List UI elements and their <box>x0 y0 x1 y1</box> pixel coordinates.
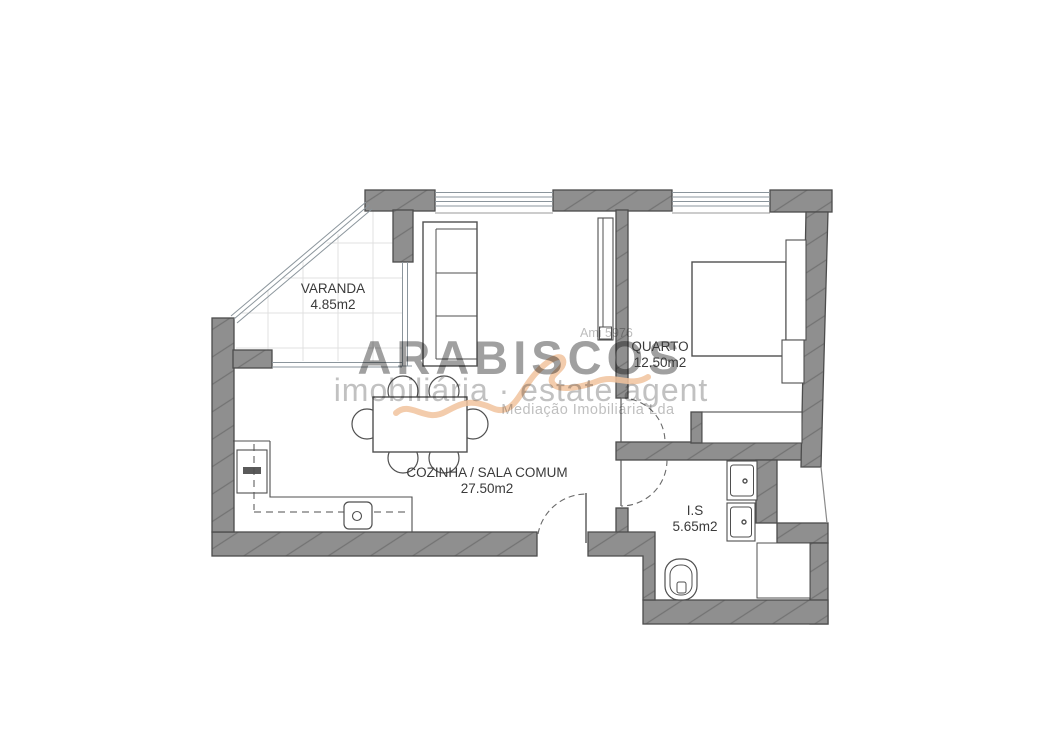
room-label-quarto: QUARTO 12.50m2 <box>631 339 688 371</box>
wall-pier-left <box>233 350 272 368</box>
wall-bathroom-right <box>756 460 777 523</box>
room-label-is: I.S 5.65m2 <box>672 503 717 535</box>
wall-bedroom-bathroom <box>616 442 813 460</box>
room-name: VARANDA <box>301 281 365 297</box>
window-living <box>435 193 553 214</box>
wall-corner-top-right <box>770 190 832 212</box>
sink-drain <box>353 512 362 521</box>
watermark-company: Mediação Imobiliária Lda <box>501 402 674 418</box>
washbasin <box>727 461 757 500</box>
wall-bottom <box>212 532 537 556</box>
wall-niche-bottom <box>777 523 828 543</box>
wall-pier-wardrobe <box>691 412 702 443</box>
room-label-varanda: VARANDA 4.85m2 <box>301 281 365 313</box>
washbasin <box>727 503 755 541</box>
facade-line-niche <box>821 467 827 523</box>
watermark-license: Ami 5976 <box>580 326 633 340</box>
kitchen <box>233 441 412 532</box>
room-area: 4.85m2 <box>301 297 365 313</box>
wall-bathroom-bottom <box>643 600 828 624</box>
wall-entry-step <box>588 532 655 600</box>
shelf-unit <box>598 218 613 340</box>
toilet <box>665 559 697 600</box>
wall-stem-balcony <box>393 210 413 262</box>
bathroom-door <box>621 460 667 506</box>
room-name: I.S <box>672 503 717 519</box>
room-label-cozinha: COZINHA / SALA COMUM 27.50m2 <box>406 465 567 497</box>
bedside-shelf <box>786 240 806 340</box>
shower <box>757 543 810 598</box>
room-area: 27.50m2 <box>406 481 567 497</box>
room-area: 12.50m2 <box>631 355 688 371</box>
room-name: QUARTO <box>631 339 688 355</box>
wall-pier-top-left <box>365 190 435 211</box>
wall-pier-bathroom <box>616 508 628 533</box>
nightstand <box>782 340 804 383</box>
window-bedroom <box>672 193 770 214</box>
bedroom-furniture <box>692 240 806 443</box>
room-area: 5.65m2 <box>672 519 717 535</box>
entrance-door <box>538 493 586 543</box>
wall-pier-top-center <box>553 190 672 211</box>
wardrobe <box>702 412 802 443</box>
wall-left <box>212 318 234 532</box>
room-name: COZINHA / SALA COMUM <box>406 465 567 481</box>
floor-plan: ARABISCOS imobiliária · estate agent Med… <box>0 0 1062 752</box>
fridge-handle <box>243 467 261 474</box>
bed <box>692 262 786 356</box>
